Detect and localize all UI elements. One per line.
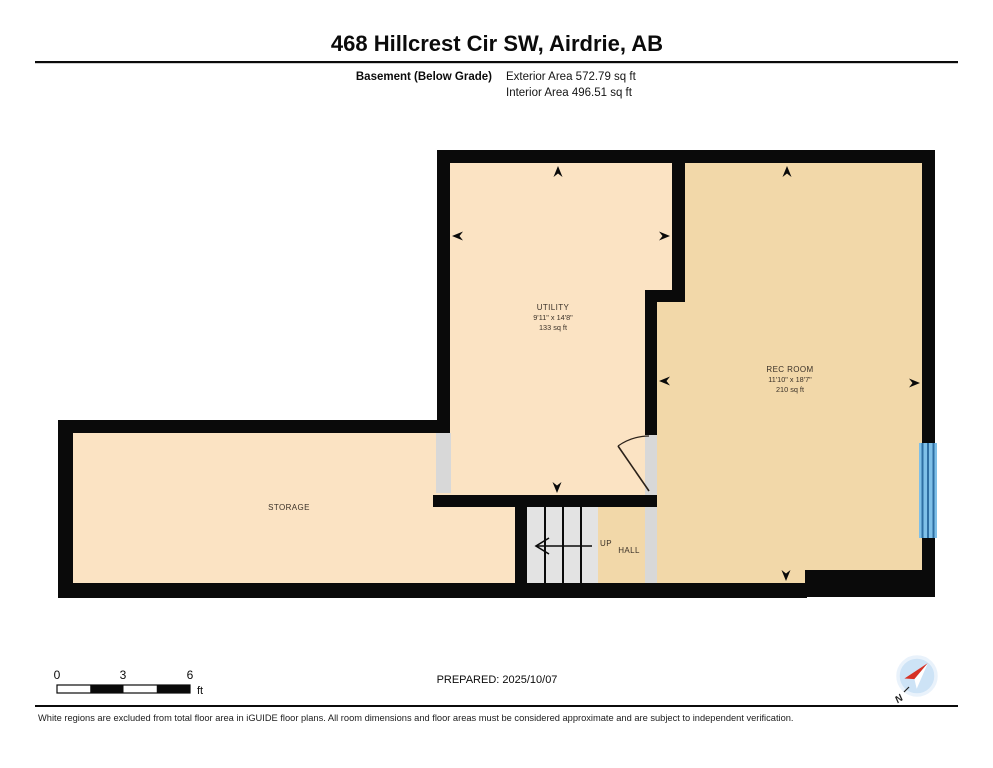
- floor-plan-page: 468 Hillcrest Cir SW, Airdrie, AB Baseme…: [0, 0, 993, 768]
- wall-segment-storage-top: [58, 420, 450, 433]
- label-rec-room-name: REC ROOM: [766, 365, 813, 374]
- wall-segment-storage-left: [58, 420, 73, 598]
- wall-segment-utility-bottom: [433, 495, 657, 507]
- label-rec-room-dimensions: 11'10" x 18'7": [768, 375, 812, 384]
- page-title: 468 Hillcrest Cir SW, Airdrie, AB: [331, 31, 663, 56]
- window-glyph: [919, 443, 937, 538]
- label-utility-name: UTILITY: [537, 303, 570, 312]
- wall-segment-left-upper: [437, 150, 450, 433]
- wall-segment-right-upper: [922, 150, 935, 443]
- exterior-area-label: Exterior Area 572.79 sq ft: [506, 71, 637, 83]
- label-hall-name: HALL: [618, 546, 640, 555]
- scale-bar-segment: [157, 685, 190, 693]
- stairs: [527, 507, 598, 583]
- compass-icon: N: [893, 657, 936, 706]
- label-utility-area: 133 sq ft: [539, 323, 567, 332]
- wall-segment-divider-mid: [645, 300, 657, 435]
- floor-label: Basement (Below Grade): [356, 71, 492, 83]
- compass-north-label: N: [893, 692, 906, 706]
- label-storage-name: STORAGE: [268, 503, 310, 512]
- label-rec-room-area: 210 sq ft: [776, 385, 804, 394]
- label-utility-dimensions: 9'11" x 14'8": [533, 313, 573, 322]
- wall-segment-divider-upper: [672, 163, 685, 292]
- label-up: UP: [600, 539, 612, 548]
- wall-segment-right-lower: [922, 538, 935, 597]
- wall-segment-stairs-left: [515, 507, 527, 583]
- scale-unit-label: ft: [197, 685, 203, 697]
- footer-rule: [35, 705, 958, 707]
- wall-segment-top: [437, 150, 935, 163]
- opening-door-utility: [645, 435, 657, 495]
- floor-plan-canvas: 468 Hillcrest Cir SW, Airdrie, AB Baseme…: [0, 0, 993, 768]
- scale-tick-0: 0: [54, 668, 61, 682]
- wall-segment-bottom-right-step: [805, 570, 935, 597]
- disclaimer-text: White regions are excluded from total fl…: [38, 713, 794, 723]
- opening-storage-utility: [436, 433, 451, 493]
- opening-hall-rec: [645, 507, 657, 583]
- scale-bar: 0 3 6 ft: [54, 668, 203, 697]
- prepared-date: PREPARED: 2025/10/07: [437, 674, 558, 686]
- scale-tick-6: 6: [187, 668, 194, 682]
- interior-area-label: Interior Area 496.51 sq ft: [506, 87, 633, 99]
- wall-segment-bottom: [58, 583, 807, 598]
- header-rule: [35, 61, 958, 63]
- scale-tick-3: 3: [120, 668, 127, 682]
- scale-bar-segment: [90, 685, 123, 693]
